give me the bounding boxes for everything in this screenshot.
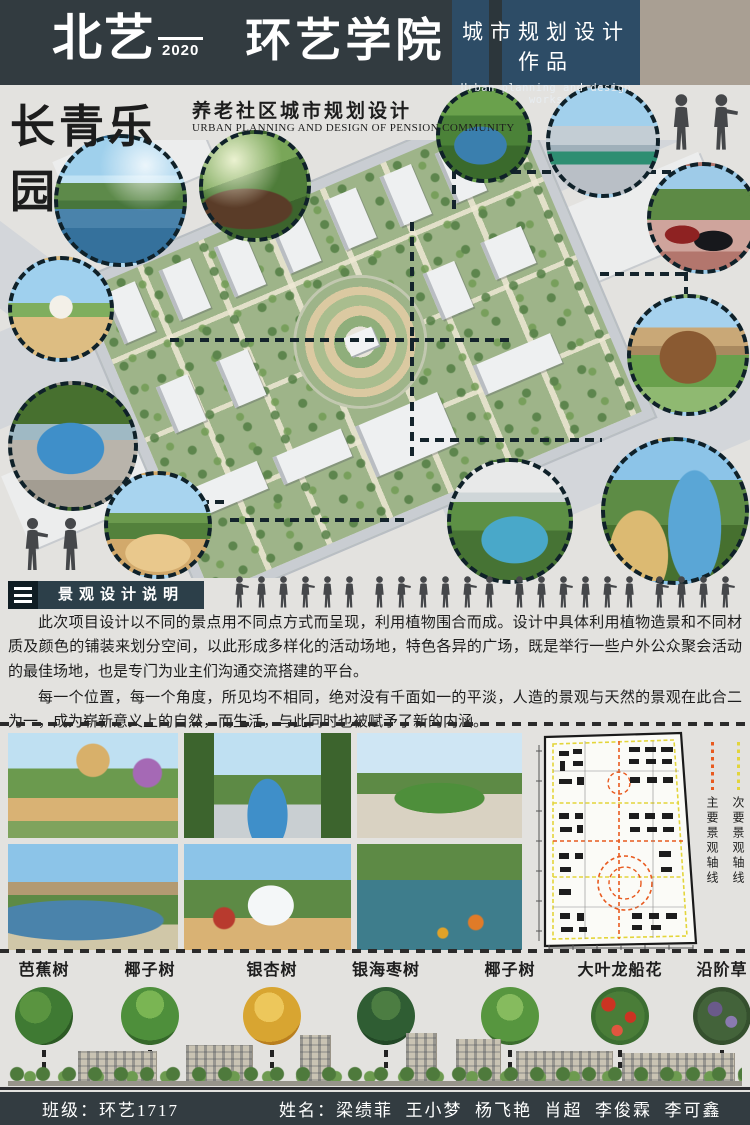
section-heading: 景观设计说明 (38, 581, 204, 609)
logo-text: 北艺 (52, 13, 156, 63)
person-silhouette (718, 576, 736, 609)
works-title-cn: 城市规划设计作品 (452, 16, 640, 76)
header-tan-block (640, 0, 750, 85)
person-silhouette (58, 512, 88, 578)
section-banner: 景观设计说明 (8, 581, 204, 609)
plant-item: 银海枣树 (328, 956, 444, 1045)
callout-stepped-plaza-view (104, 471, 212, 579)
leader-line (452, 170, 456, 212)
menu-bars-icon (8, 581, 38, 609)
gallery-photo-koi-pond (357, 844, 522, 950)
person-silhouette (556, 576, 574, 609)
works-title-en: Urban planning and design works (452, 82, 640, 106)
person-silhouette (416, 576, 434, 609)
callout-park-bench-view (199, 130, 311, 242)
person-silhouette (674, 576, 692, 609)
gallery-photo-water-axis (184, 733, 351, 838)
plant-image-ginkgo-tree (243, 987, 301, 1045)
poster: 北艺 2020 环艺学院 城市规划设计作品 Urban planning and… (0, 0, 750, 1125)
gallery-photo-pergola (8, 733, 178, 838)
plant-item: 银杏树 (214, 956, 330, 1045)
gallery-photo-fountain (184, 844, 351, 950)
description-paragraph-2: 每一个位置，每一个角度，所见均不相同，绝对没有千面如一的平淡，人造的景观与天然的… (8, 686, 742, 735)
person-silhouette (512, 576, 530, 609)
plant-name: 银杏树 (214, 956, 330, 980)
dashed-divider-top (0, 722, 750, 726)
leader-line (420, 438, 602, 442)
callout-playground-view (8, 256, 114, 362)
school-logo: 北艺 2020 环艺学院 (52, 13, 445, 63)
render-gallery (8, 733, 522, 950)
plant-name: 芭蕉树 (0, 956, 102, 980)
person-silhouette (696, 576, 714, 609)
names-label: 姓名：梁绩菲 王小梦 杨飞艳 肖超 李俊霖 李可鑫 (279, 1096, 722, 1121)
plant-name: 银海枣树 (328, 956, 444, 980)
leader-line (600, 272, 686, 276)
elevation-ground (8, 1081, 742, 1086)
gallery-photo-garden-beds (357, 733, 522, 838)
project-subtitle-cn: 养老社区城市规划设计 (192, 96, 412, 123)
person-silhouette (708, 86, 740, 160)
plant-name: 大叶龙船花 (562, 956, 678, 980)
elevation-strip (8, 1038, 742, 1090)
leader-line (684, 272, 688, 294)
gallery-photo-canal (8, 844, 178, 950)
silhouette-pair-bottom (20, 512, 88, 578)
crowd-group (652, 576, 736, 609)
header-title-block: 城市规划设计作品 Urban planning and design works (452, 0, 640, 85)
plant-image-mondo-grass (693, 987, 750, 1045)
person-silhouette (482, 576, 500, 609)
person-silhouette (668, 86, 700, 160)
callout-parking-view (647, 162, 750, 274)
plan-legend: 主要景观轴线 次要景观轴线 (704, 742, 747, 886)
person-silhouette (534, 576, 552, 609)
person-silhouette (320, 576, 338, 609)
plant-name: 沿阶草 (664, 956, 750, 980)
class-label: 班级：环艺1717 (42, 1096, 179, 1121)
logo-department: 环艺学院 (245, 17, 445, 63)
callout-riverwalk-view (601, 437, 749, 585)
crowd-group (512, 576, 640, 609)
plant-item: 芭蕉树 (0, 956, 102, 1045)
plant-item: 椰子树 (92, 956, 208, 1045)
person-silhouette (394, 576, 412, 609)
callout-pavilion-view (627, 294, 749, 416)
primary-axis-line-icon (711, 742, 715, 790)
person-silhouette (622, 576, 640, 609)
plant-item: 大叶龙船花 (562, 956, 678, 1045)
person-silhouette (254, 576, 272, 609)
person-silhouette (372, 576, 390, 609)
dashed-divider-bottom (0, 949, 750, 953)
plant-item: 椰子树 (452, 956, 568, 1045)
person-silhouette (232, 576, 250, 609)
legend-primary-label: 主要景观轴线 (704, 796, 721, 886)
project-subtitle-en: URBAN PLANNING AND DESIGN OF PENSION COM… (192, 122, 515, 134)
footer-bar: 班级：环艺1717 姓名：梁绩菲 王小梦 杨飞艳 肖超 李俊霖 李可鑫 (0, 1092, 750, 1125)
elevation-baseline (0, 1087, 750, 1090)
person-silhouette (276, 576, 294, 609)
person-silhouette (20, 512, 50, 578)
person-silhouette (600, 576, 618, 609)
person-silhouette (298, 576, 316, 609)
leader-line (230, 518, 410, 522)
design-description: 此次项目设计以不同的景点用不同点方式而呈现，利用植物围合而成。设计中具体利用植物… (8, 611, 742, 736)
description-paragraph-1: 此次项目设计以不同的景点用不同点方式而呈现，利用植物围合而成。设计中具体利用植物… (8, 611, 742, 684)
plant-name: 椰子树 (92, 956, 208, 980)
person-silhouette (438, 576, 456, 609)
legend-primary-axis: 主要景观轴线 (704, 742, 721, 886)
person-silhouette (652, 576, 670, 609)
crowd-group (372, 576, 500, 609)
plant-image-banana-tree (15, 987, 73, 1045)
leader-line (170, 338, 515, 342)
legend-secondary-axis: 次要景观轴线 (730, 742, 747, 886)
elevation-trees (8, 1059, 742, 1083)
silhouette-pair-top (668, 86, 740, 160)
leader-line (410, 222, 414, 458)
project-title: 长青乐园 (10, 90, 192, 220)
plant-image-coconut-tree-2 (481, 987, 539, 1045)
person-silhouette (342, 576, 360, 609)
site-plan-drawing (533, 731, 701, 953)
person-silhouette (460, 576, 478, 609)
crowd-group (232, 576, 360, 609)
plant-image-ixora (591, 987, 649, 1045)
person-silhouette (578, 576, 596, 609)
plant-name: 椰子树 (452, 956, 568, 980)
plant-image-coconut-tree (121, 987, 179, 1045)
secondary-axis-line-icon (737, 742, 741, 790)
header-bar: 北艺 2020 环艺学院 城市规划设计作品 Urban planning and… (0, 0, 750, 85)
plant-item: 沿阶草 (664, 956, 750, 1045)
logo-year: 2020 (158, 37, 203, 59)
callout-pool-garden-view (447, 458, 573, 584)
legend-secondary-label: 次要景观轴线 (730, 796, 747, 886)
